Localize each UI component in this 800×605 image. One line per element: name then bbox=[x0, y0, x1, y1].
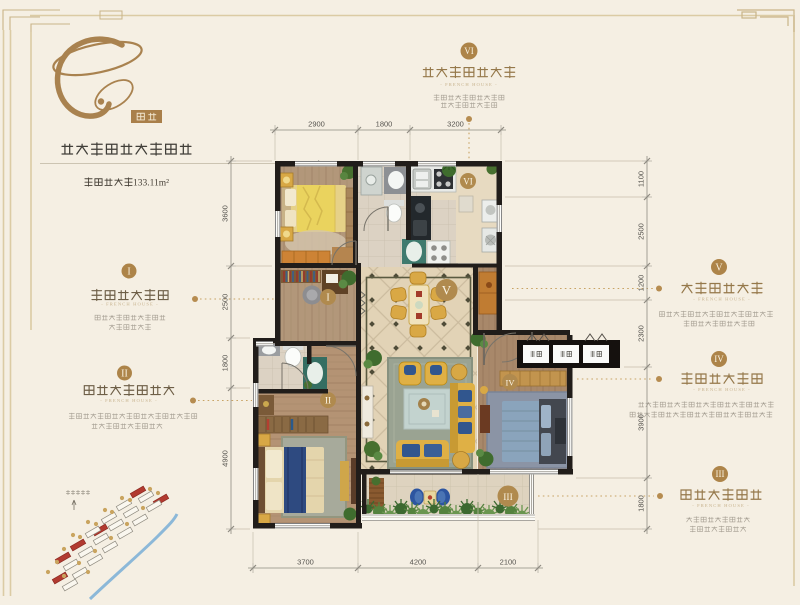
svg-text:133.11m²: 133.11m² bbox=[133, 179, 169, 189]
svg-text:V: V bbox=[442, 283, 452, 298]
svg-text:II: II bbox=[325, 397, 331, 407]
svg-text:- FRENCH HOUSE -: - FRENCH HOUSE - bbox=[693, 297, 751, 302]
svg-text:- FRENCH HOUSE -: - FRENCH HOUSE - bbox=[440, 82, 498, 87]
svg-text:1800: 1800 bbox=[376, 120, 393, 129]
svg-text:IV: IV bbox=[506, 378, 516, 388]
svg-text:II: II bbox=[121, 369, 128, 380]
svg-text:3600: 3600 bbox=[221, 205, 230, 222]
svg-text:III: III bbox=[503, 493, 513, 503]
svg-text:3200: 3200 bbox=[447, 120, 464, 129]
svg-text:2300: 2300 bbox=[637, 325, 646, 342]
svg-text:1800: 1800 bbox=[637, 495, 646, 512]
svg-text:- FRENCH HOUSE -: - FRENCH HOUSE - bbox=[693, 387, 751, 392]
svg-text:- FRENCH HOUSE -: - FRENCH HOUSE - bbox=[692, 503, 750, 508]
svg-text:III: III bbox=[716, 469, 725, 479]
svg-text:IV: IV bbox=[714, 354, 724, 364]
svg-text:1200: 1200 bbox=[637, 275, 646, 292]
svg-text:- FRENCH HOUSE -: - FRENCH HOUSE - bbox=[101, 302, 159, 307]
svg-text:2100: 2100 bbox=[500, 558, 517, 567]
svg-text:1100: 1100 bbox=[637, 171, 646, 187]
svg-text:3700: 3700 bbox=[297, 558, 314, 567]
svg-text:VI: VI bbox=[463, 177, 473, 187]
svg-text:V: V bbox=[715, 263, 723, 274]
svg-text:4200: 4200 bbox=[410, 558, 427, 567]
svg-text:VI: VI bbox=[464, 46, 474, 56]
svg-text:3900: 3900 bbox=[637, 414, 646, 431]
svg-text:I: I bbox=[127, 267, 130, 278]
svg-text:2500: 2500 bbox=[221, 294, 230, 311]
svg-text:1800: 1800 bbox=[221, 355, 230, 372]
svg-text:I: I bbox=[326, 293, 329, 304]
svg-text:4900: 4900 bbox=[221, 450, 230, 467]
svg-text:- FRENCH HOUSE -: - FRENCH HOUSE - bbox=[100, 398, 158, 403]
svg-text:2900: 2900 bbox=[308, 120, 325, 129]
svg-text:2500: 2500 bbox=[637, 223, 646, 240]
